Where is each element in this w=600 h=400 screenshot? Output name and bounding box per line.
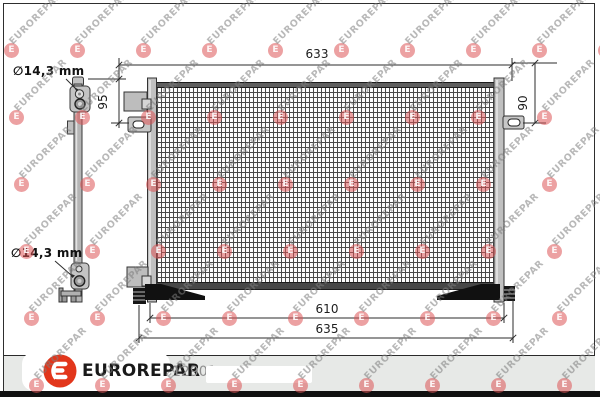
dim-label-633: 633 [295,48,339,60]
bottom-left-connector-block [127,267,148,287]
watermark-text: EUROREPAR [22,191,79,248]
bottom-port-center [78,279,82,283]
side-view [59,77,90,302]
top-port-upper-center [78,93,81,96]
watermark-logo-icon: E [80,177,95,192]
watermark-logo-icon: E [70,43,85,58]
watermark-text: EUROREPAR [550,191,600,248]
dim-label-610: 610 [305,303,349,315]
foot-bracket-plate [61,291,81,296]
watermark-logo-icon: E [141,110,156,125]
top-left-mount-tab [128,117,151,132]
watermark-text: EUROREPAR [73,0,130,47]
leader-top-arrow [74,87,79,92]
tube-bottom-end [75,289,82,302]
watermark-text: EUROREPAR [469,0,526,47]
watermark-logo-icon: E [537,110,552,125]
tube-side-tab [68,121,75,134]
watermark-text: EUROREPAR [17,124,74,181]
leader-bottom-arrow [69,273,75,278]
watermark-logo-icon: E [202,43,217,58]
top-left-connector-block [124,92,147,111]
watermark-logo-icon: E [420,311,435,326]
right-mount-tab [503,116,524,129]
dim-label-90: 90 [517,91,529,115]
core-bottom-edge [157,282,494,290]
port-callout-top: ∅14,3 mm [13,64,84,78]
footer-bottom-bar [0,391,600,397]
watermark-tile: EEUROREPAR [537,110,597,170]
watermark-text: EUROREPAR [27,258,84,315]
footer-white-box [206,366,312,383]
watermark-logo-icon: E [542,177,557,192]
watermark-logo-icon: E [532,43,547,58]
watermark-logo-icon: E [222,311,237,326]
right-comb [504,286,515,301]
foot-bracket-vertical [59,288,63,302]
watermark-text: EUROREPAR [139,0,196,47]
frame-border-top [3,3,595,4]
bottom-left-connector-step [142,276,151,286]
watermark-logo-icon: E [9,110,24,125]
bottom-port [74,276,84,286]
watermark-text: EUROREPAR [271,0,328,47]
frame-border-left [3,3,4,391]
port-callout-bottom: ∅14,3 mm [11,246,82,260]
tube-body [74,84,82,302]
top-port-upper [75,90,83,98]
watermark-tile: EEUROREPAR [14,177,74,237]
watermark-logo-icon: E [400,43,415,58]
leader-top-port [66,79,76,89]
right-tank [494,78,504,302]
dim-label-95: 95 [97,90,109,114]
top-port-lower [75,99,85,109]
frame-border-right [594,3,595,391]
top-port-lower-center [78,102,82,106]
watermark-tile: EEUROREPAR [85,244,145,304]
tube-top-cap [73,77,84,86]
watermark-text: EUROREPAR [540,57,597,114]
top-left-mount-hole [133,121,144,128]
watermark-logo-icon: E [90,311,105,326]
brand-logo-icon [43,354,77,388]
left-comb [133,288,146,304]
watermark-tile: EEUROREPAR [532,43,592,103]
bottom-fitting [71,263,89,289]
watermark-logo-icon: E [85,244,100,259]
foot-bracket-prong-1 [62,296,67,302]
watermark-text: EUROREPAR [93,258,150,315]
watermark-logo-icon: E [552,311,567,326]
watermark-logo-icon: E [354,311,369,326]
watermark-text: EUROREPAR [88,191,145,248]
watermark-logo-icon: E [547,244,562,259]
watermark-logo-icon: E [156,311,171,326]
watermark-logo-icon: E [486,311,501,326]
watermark-tile: EEUROREPAR [542,177,600,237]
watermark-logo-icon: E [288,311,303,326]
top-left-connector-step [142,99,151,109]
bottom-port-upper [76,266,82,272]
watermark-logo-icon: E [4,43,19,58]
watermark-tile: EEUROREPAR [75,110,135,170]
watermark-text: EUROREPAR [83,124,140,181]
foot-bracket-prong-2 [71,296,76,302]
watermark-tile: EEUROREPAR [80,177,140,237]
watermark-logo-icon: E [24,311,39,326]
watermark-text: EUROREPAR [535,0,592,47]
top-fitting [70,86,90,112]
watermark-text: EUROREPAR [205,0,262,47]
dim-label-635: 635 [305,323,349,335]
watermark-logo-icon: E [268,43,283,58]
watermark-text: EUROREPAR [403,0,460,47]
watermark-tile: EEUROREPAR [9,110,69,170]
left-tank [148,78,157,302]
watermark-logo-icon: E [75,110,90,125]
watermark-tile: EEUROREPAR [547,244,600,304]
watermark-text: EUROREPAR [545,124,600,181]
watermark-logo-icon: E [136,43,151,58]
condenser-core-grid [157,82,494,288]
watermark-text: EUROREPAR [337,0,394,47]
core-top-edge [157,82,494,88]
watermark-text: EUROREPAR [489,258,546,315]
catalog-image: 633 95 90 610 635 ∅14,3 mm ∅14,3 mm EURO… [0,0,600,400]
watermark-logo-icon: E [466,43,481,58]
leader-bottom-port [55,261,71,275]
watermark-text: EUROREPAR [7,0,64,47]
watermark-logo-icon: E [14,177,29,192]
right-mount-hole [508,119,520,126]
